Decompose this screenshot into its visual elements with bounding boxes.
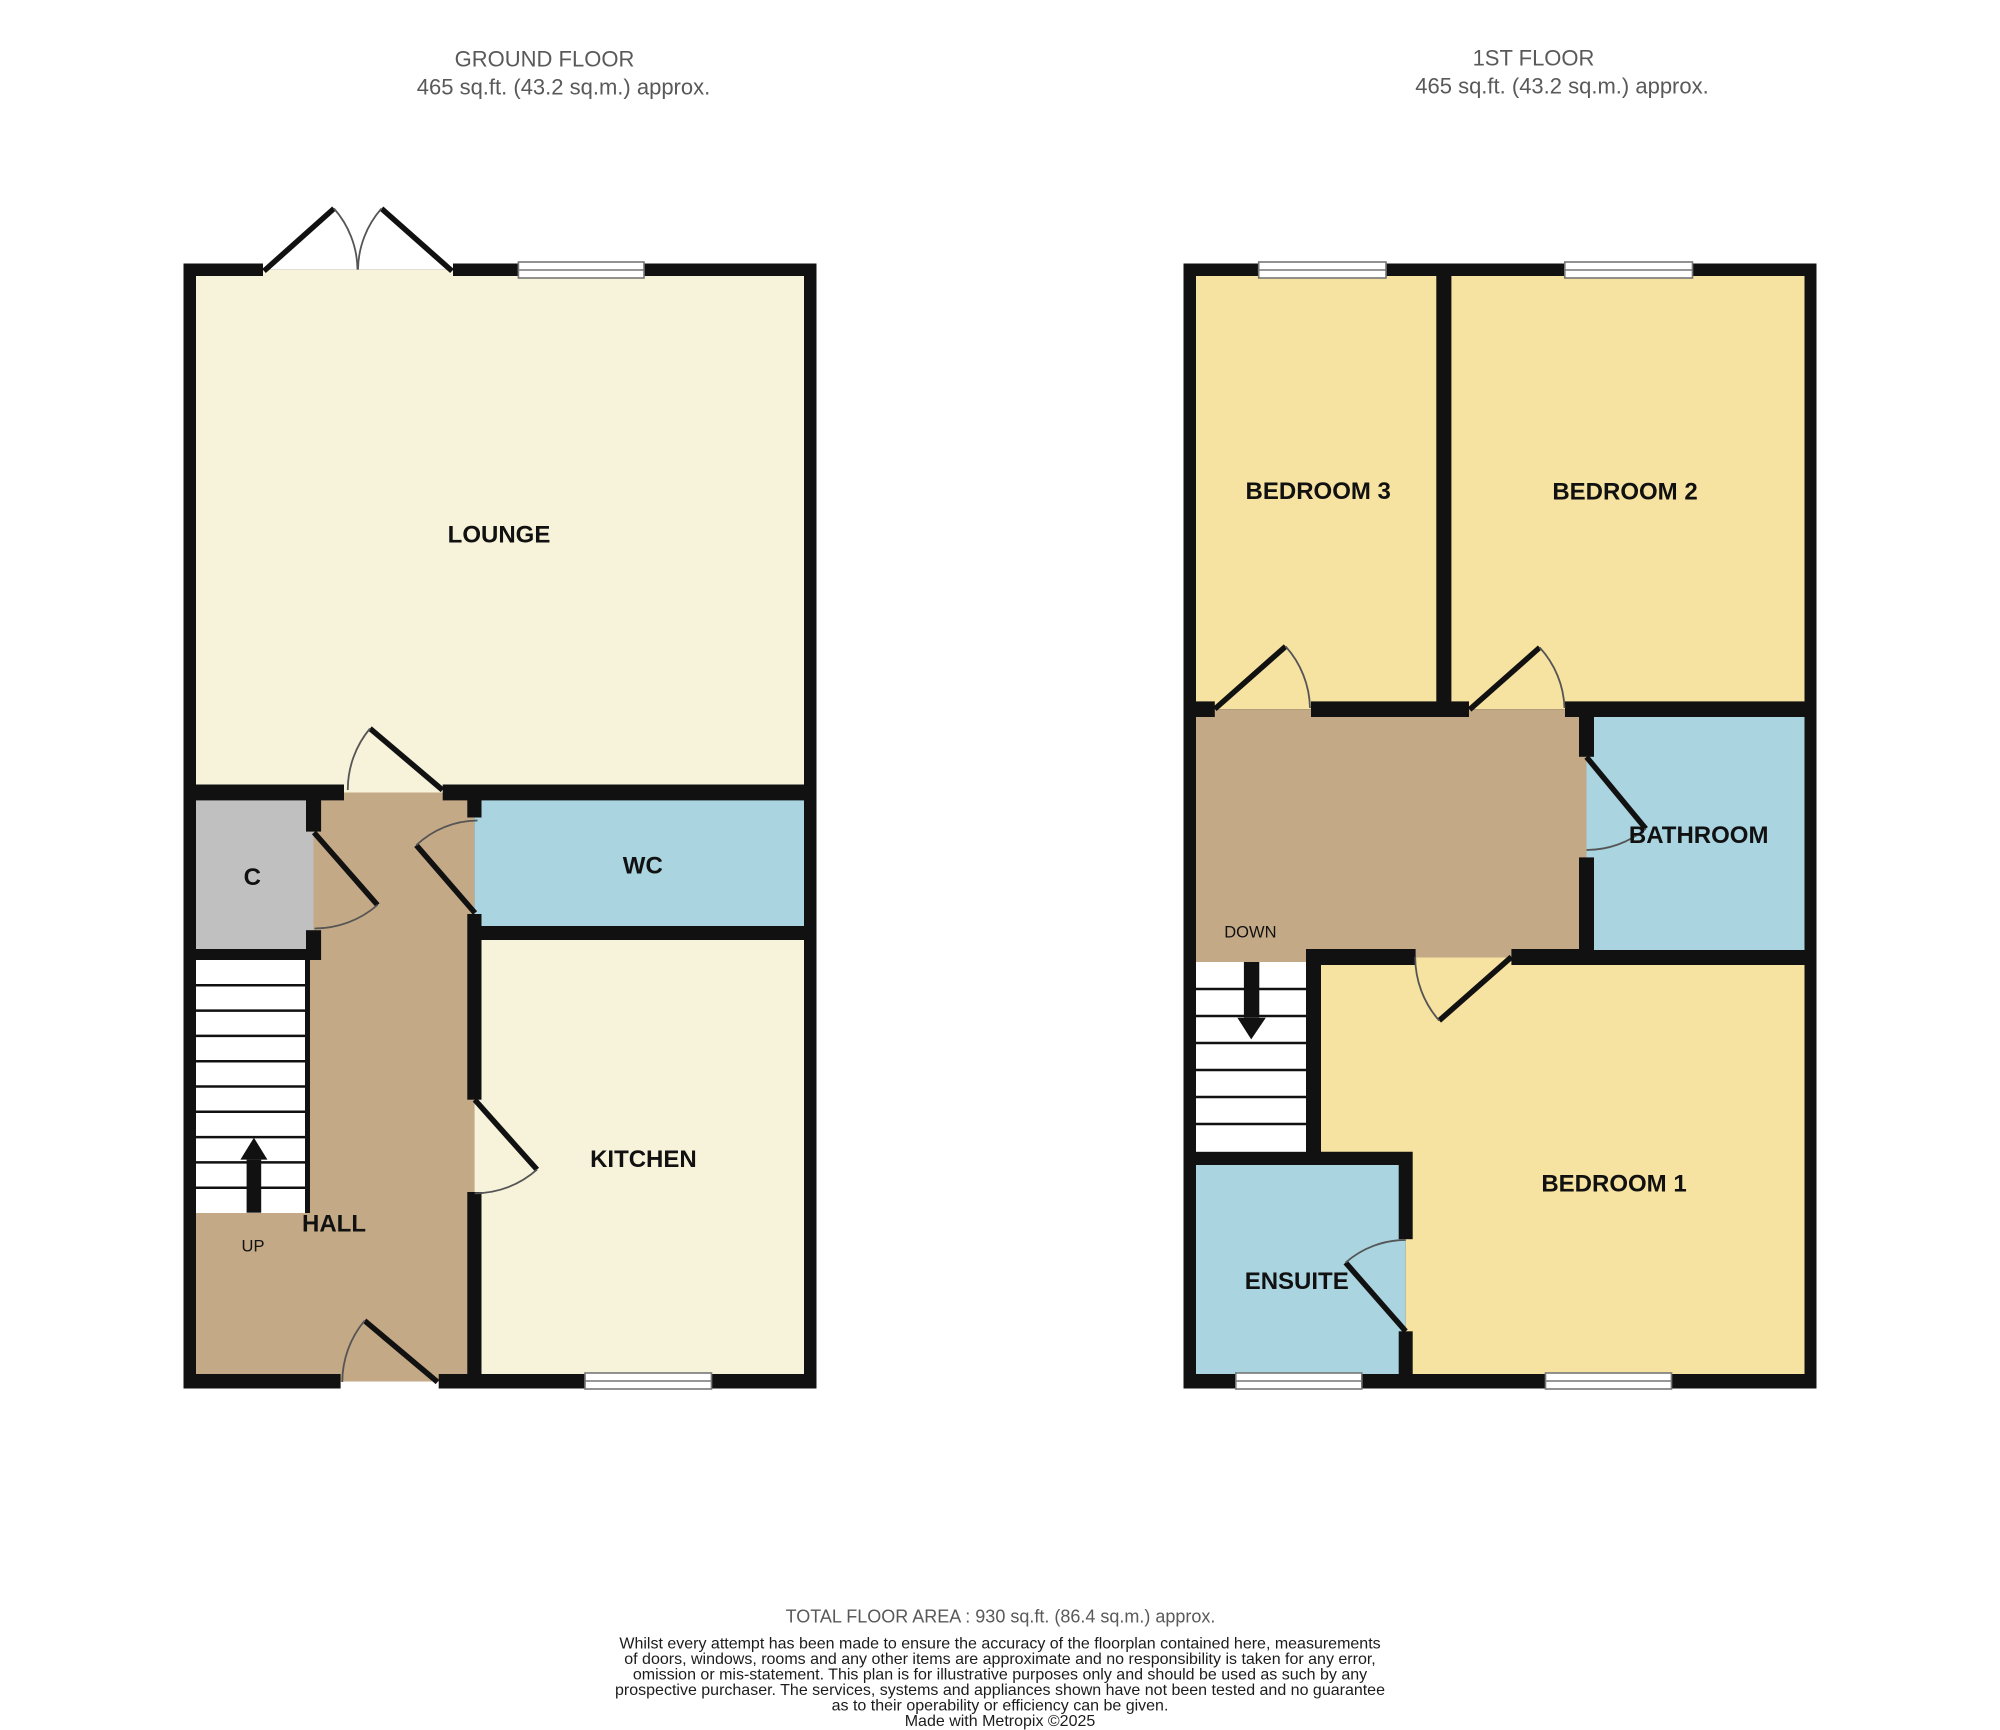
svg-text:TOTAL FLOOR AREA : 930 sq.ft.: TOTAL FLOOR AREA : 930 sq.ft. (86.4 sq.m… [786, 1607, 1216, 1627]
svg-text:C: C [244, 864, 261, 891]
svg-text:omission or mis-statement. Thi: omission or mis-statement. This plan is … [633, 1667, 1367, 1684]
svg-text:BEDROOM 3: BEDROOM 3 [1246, 478, 1391, 505]
svg-text:HALL: HALL [302, 1211, 366, 1238]
svg-text:UP: UP [242, 1238, 265, 1256]
svg-text:465 sq.ft. (43.2 sq.m.) approx: 465 sq.ft. (43.2 sq.m.) approx. [417, 75, 710, 100]
svg-text:as to their operability or eff: as to their operability or efficiency ca… [832, 1698, 1169, 1715]
svg-text:465 sq.ft. (43.2 sq.m.) approx: 465 sq.ft. (43.2 sq.m.) approx. [1415, 74, 1708, 99]
svg-text:Made with Metropix ©2025: Made with Metropix ©2025 [905, 1713, 1096, 1730]
svg-text:GROUND FLOOR: GROUND FLOOR [455, 47, 635, 72]
svg-text:LOUNGE: LOUNGE [448, 522, 551, 549]
svg-text:DOWN: DOWN [1224, 924, 1276, 942]
svg-text:BATHROOM: BATHROOM [1629, 822, 1769, 849]
svg-text:KITCHEN: KITCHEN [590, 1146, 697, 1173]
svg-text:BEDROOM 1: BEDROOM 1 [1541, 1171, 1686, 1198]
svg-text:ENSUITE: ENSUITE [1245, 1268, 1349, 1295]
svg-text:1ST FLOOR: 1ST FLOOR [1473, 46, 1595, 71]
svg-text:WC: WC [623, 853, 663, 880]
svg-text:prospective purchaser. The ser: prospective purchaser. The services, sys… [615, 1682, 1385, 1699]
svg-text:BEDROOM 2: BEDROOM 2 [1552, 479, 1697, 506]
svg-text:of doors, windows, rooms and a: of doors, windows, rooms and any other i… [624, 1651, 1375, 1668]
svg-text:Whilst every attempt has been: Whilst every attempt has been made to en… [619, 1636, 1380, 1653]
